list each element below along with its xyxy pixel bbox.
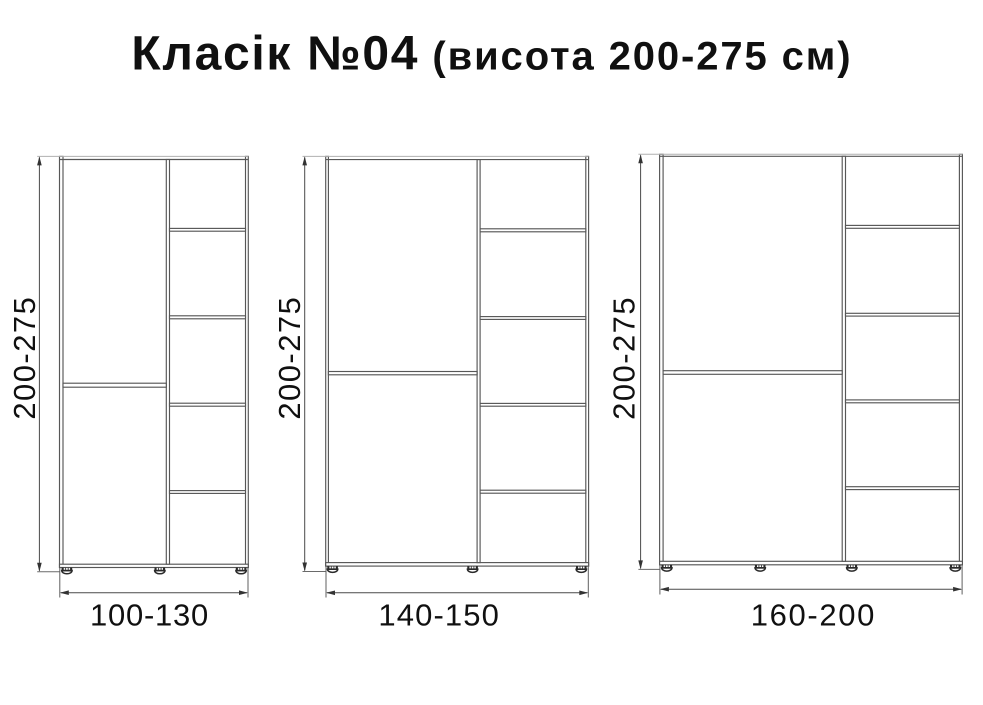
svg-text:200-275: 200-275 [272, 296, 307, 420]
svg-text:200-275: 200-275 [7, 296, 42, 420]
svg-text:100-130: 100-130 [90, 598, 209, 633]
svg-text:140-150: 140-150 [378, 598, 500, 633]
svg-text:Класік №04: Класік №04 [131, 28, 419, 81]
svg-text:(висота 200-275 см): (висота 200-275 см) [432, 35, 852, 79]
svg-text:200-275: 200-275 [606, 296, 641, 420]
svg-text:160-200: 160-200 [751, 598, 876, 633]
